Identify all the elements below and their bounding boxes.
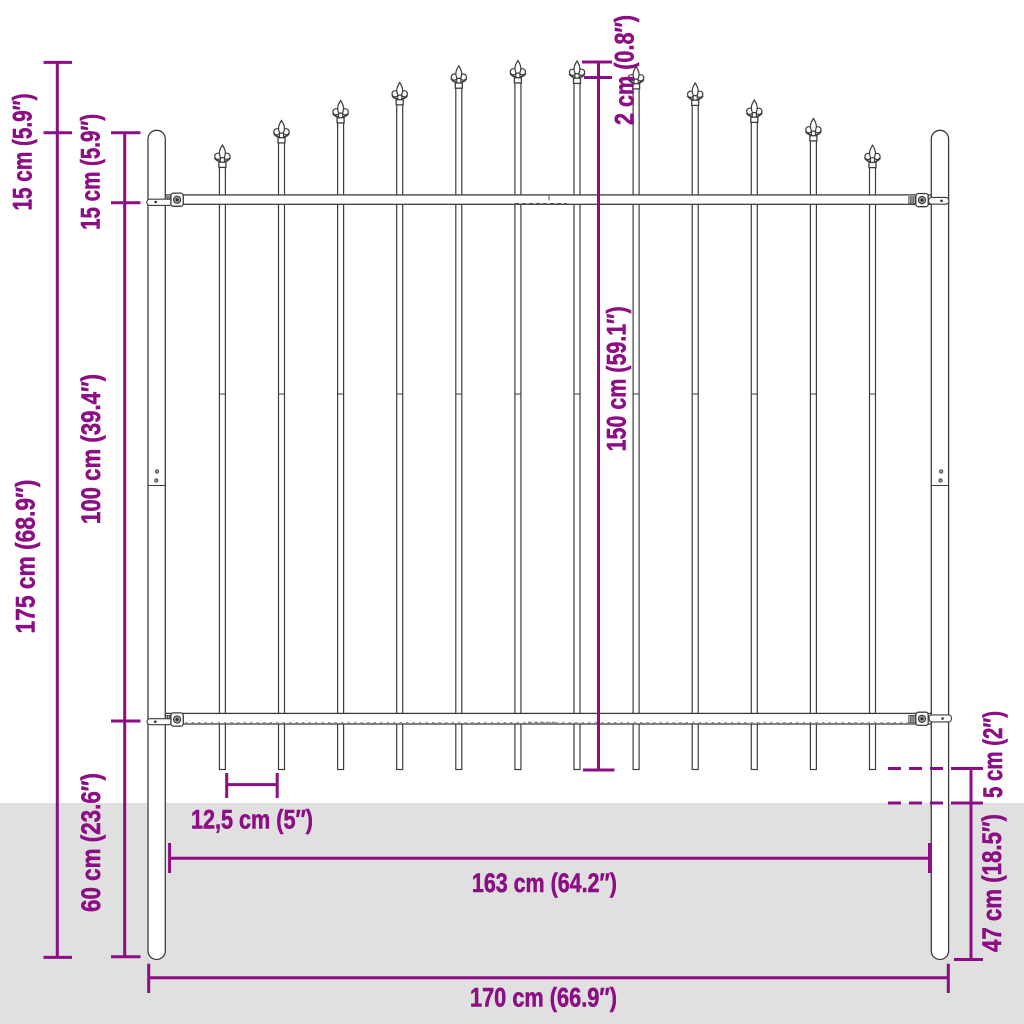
- svg-text:12,5 cm (5″): 12,5 cm (5″): [191, 805, 313, 835]
- svg-text:2 cm (0.8″): 2 cm (0.8″): [610, 15, 640, 125]
- svg-text:60 cm (23.6″): 60 cm (23.6″): [76, 773, 106, 912]
- svg-text:5 cm (2″): 5 cm (2″): [978, 711, 1008, 798]
- svg-text:100 cm (39.4″): 100 cm (39.4″): [76, 374, 106, 524]
- svg-text:47 cm (18.5″): 47 cm (18.5″): [977, 814, 1007, 952]
- svg-text:163 cm (64.2″): 163 cm (64.2″): [472, 868, 617, 898]
- svg-text:150 cm (59.1″): 150 cm (59.1″): [602, 306, 632, 451]
- svg-text:15 cm (5.9″): 15 cm (5.9″): [76, 114, 106, 230]
- svg-text:170 cm (66.9″): 170 cm (66.9″): [470, 982, 617, 1012]
- svg-text:175 cm (68.9″): 175 cm (68.9″): [11, 480, 41, 634]
- svg-text:15 cm (5.9″): 15 cm (5.9″): [8, 94, 38, 211]
